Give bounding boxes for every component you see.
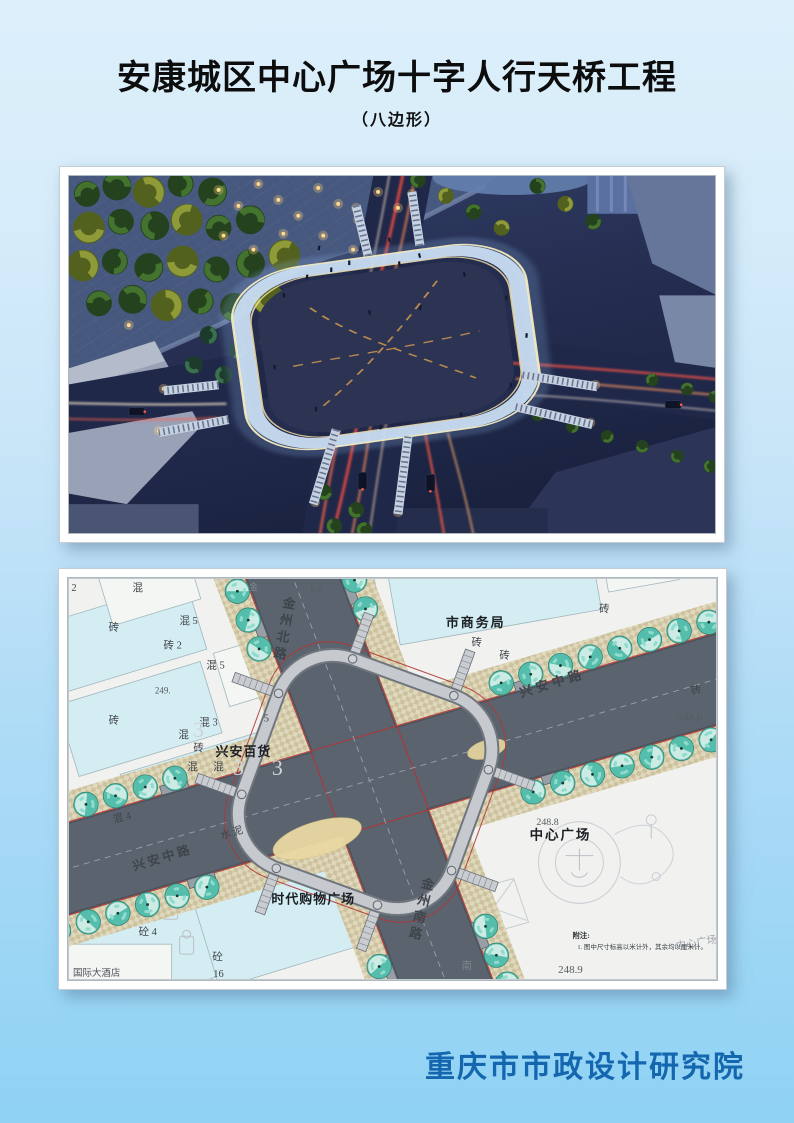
tree-icon [530, 178, 546, 194]
night-rendering-image [68, 175, 716, 534]
car [426, 474, 435, 491]
map-label: 金 [249, 581, 258, 592]
lamp-light [222, 234, 226, 238]
tree-icon [86, 290, 112, 316]
tree-icon [108, 209, 134, 235]
site-plan-image: 金州北路金州南路兴安中路兴安中路市商务局兴安百货时代购物广场中心广场中心广场国际… [67, 577, 718, 981]
pedestrian-dot [525, 333, 527, 338]
label-note-item: 1. 图中尺寸标高以米计外，其余均以厘米计。 [577, 942, 707, 951]
map-label: 砖 [472, 636, 482, 649]
map-label: 砖 [193, 741, 203, 754]
map-label: 混 5 [179, 615, 197, 627]
map-label: 5 [264, 713, 269, 724]
tree-icon [102, 249, 128, 275]
tree-icon [151, 289, 183, 321]
car [129, 408, 145, 416]
label-commerce-bureau: 市商务局 [446, 615, 506, 630]
tree-icon [671, 450, 684, 463]
label-note-title: 附注: [572, 930, 589, 940]
tree-icon [326, 518, 342, 534]
lamp-light [321, 234, 325, 238]
map-label: 砖 2 [164, 639, 182, 652]
car [358, 472, 367, 489]
map-label: 砖 [499, 649, 509, 662]
label-elevation: 248.9 [558, 964, 583, 976]
tree-icon [165, 884, 190, 908]
label-elevation: 248.8 [536, 817, 558, 828]
tree-icon [225, 579, 250, 603]
tree-icon [171, 204, 203, 236]
lamp-light [236, 204, 240, 208]
tree-icon [466, 204, 482, 220]
lamp-light [276, 198, 280, 202]
ghost-number: 3 [272, 755, 283, 780]
map-label: 南 [462, 959, 472, 972]
tree-icon [585, 214, 601, 230]
car-taillight [680, 403, 683, 406]
label-elevation: 248.6 [678, 711, 703, 723]
map-label: 砖 [599, 602, 609, 615]
tree-icon [133, 176, 165, 208]
tree-icon [636, 440, 649, 453]
site-plan-figure: 金州北路金州南路兴安中路兴安中路市商务局兴安百货时代购物广场中心广场中心广场国际… [58, 568, 727, 990]
map-label: 砼 4 [139, 925, 158, 938]
pedestrian-dot [330, 267, 332, 272]
lamp-light [256, 182, 260, 186]
footer-organization: 重庆市市政设计研究院 [425, 1042, 745, 1086]
label-international-hotel: 国际大酒店 [73, 967, 120, 979]
tree-icon [188, 288, 214, 314]
pedestrian-dot [273, 365, 275, 370]
tree-icon [73, 212, 105, 244]
tree-icon [68, 250, 99, 282]
tree-icon [473, 914, 498, 938]
label-center-plaza: 中心广场 [530, 827, 592, 843]
tree-icon [681, 382, 694, 395]
lamp-light [351, 248, 355, 252]
tree-icon [646, 373, 659, 386]
map-label: 混 5 [206, 660, 224, 672]
pedestrian-dot [348, 261, 350, 266]
map-label: 砼 [212, 950, 223, 963]
document-page: 安康城区中心广场十字人行天桥工程 （八边形） [0, 0, 794, 1123]
tree-icon [140, 211, 169, 240]
tree-icon [167, 246, 199, 278]
tree-icon [200, 326, 218, 344]
tree-icon [494, 220, 510, 236]
tree-icon [601, 430, 614, 443]
tree-icon [204, 257, 230, 283]
tree-icon [557, 196, 573, 212]
label-elevation: 249. [155, 685, 171, 695]
tree-icon [697, 610, 718, 634]
lamp-light [251, 248, 255, 252]
map-label: 16 [213, 969, 223, 980]
lamp-light [281, 232, 285, 236]
tree-icon [74, 792, 99, 816]
map-label: 混 [133, 582, 144, 594]
tree-icon [438, 188, 454, 204]
ghost-number: 3 [193, 717, 204, 742]
tree-icon [185, 356, 203, 374]
map-label: 混 [178, 729, 189, 741]
car [665, 401, 681, 409]
lamp-light [316, 186, 320, 190]
map-label: 混 [187, 761, 198, 773]
car-taillight [361, 488, 364, 491]
car-taillight [429, 490, 432, 493]
tree-icon [118, 285, 147, 314]
lamp-light [296, 214, 300, 218]
lamp-light [127, 323, 131, 327]
lamp-light [376, 190, 380, 194]
page-title: 安康城区中心广场十字人行天桥工程 [0, 50, 794, 99]
tree-icon [610, 753, 635, 778]
lamp-light [336, 202, 340, 206]
map-label: 砖 [109, 713, 119, 726]
label-times-shopping-plaza: 时代购物广场 [271, 891, 355, 906]
tree-icon [704, 460, 716, 473]
map-label: 2 [71, 583, 76, 594]
tree-icon [74, 181, 100, 207]
pedestrian-dot [510, 383, 513, 388]
tree-icon [348, 502, 364, 518]
map-label: 混 [213, 761, 224, 773]
pedestrian-dot [315, 407, 318, 412]
car-taillight [143, 410, 146, 413]
lamp-light [396, 206, 400, 210]
ghost-number: 3 [233, 755, 244, 780]
tree-icon [640, 745, 665, 769]
label-elevation: 8.9 [311, 584, 323, 594]
night-rendering-figure [59, 166, 725, 543]
tree-icon [134, 253, 163, 282]
page-subtitle: （八边形） [0, 106, 794, 130]
map-label: 砖 [109, 621, 119, 634]
lamp-light [217, 188, 221, 192]
